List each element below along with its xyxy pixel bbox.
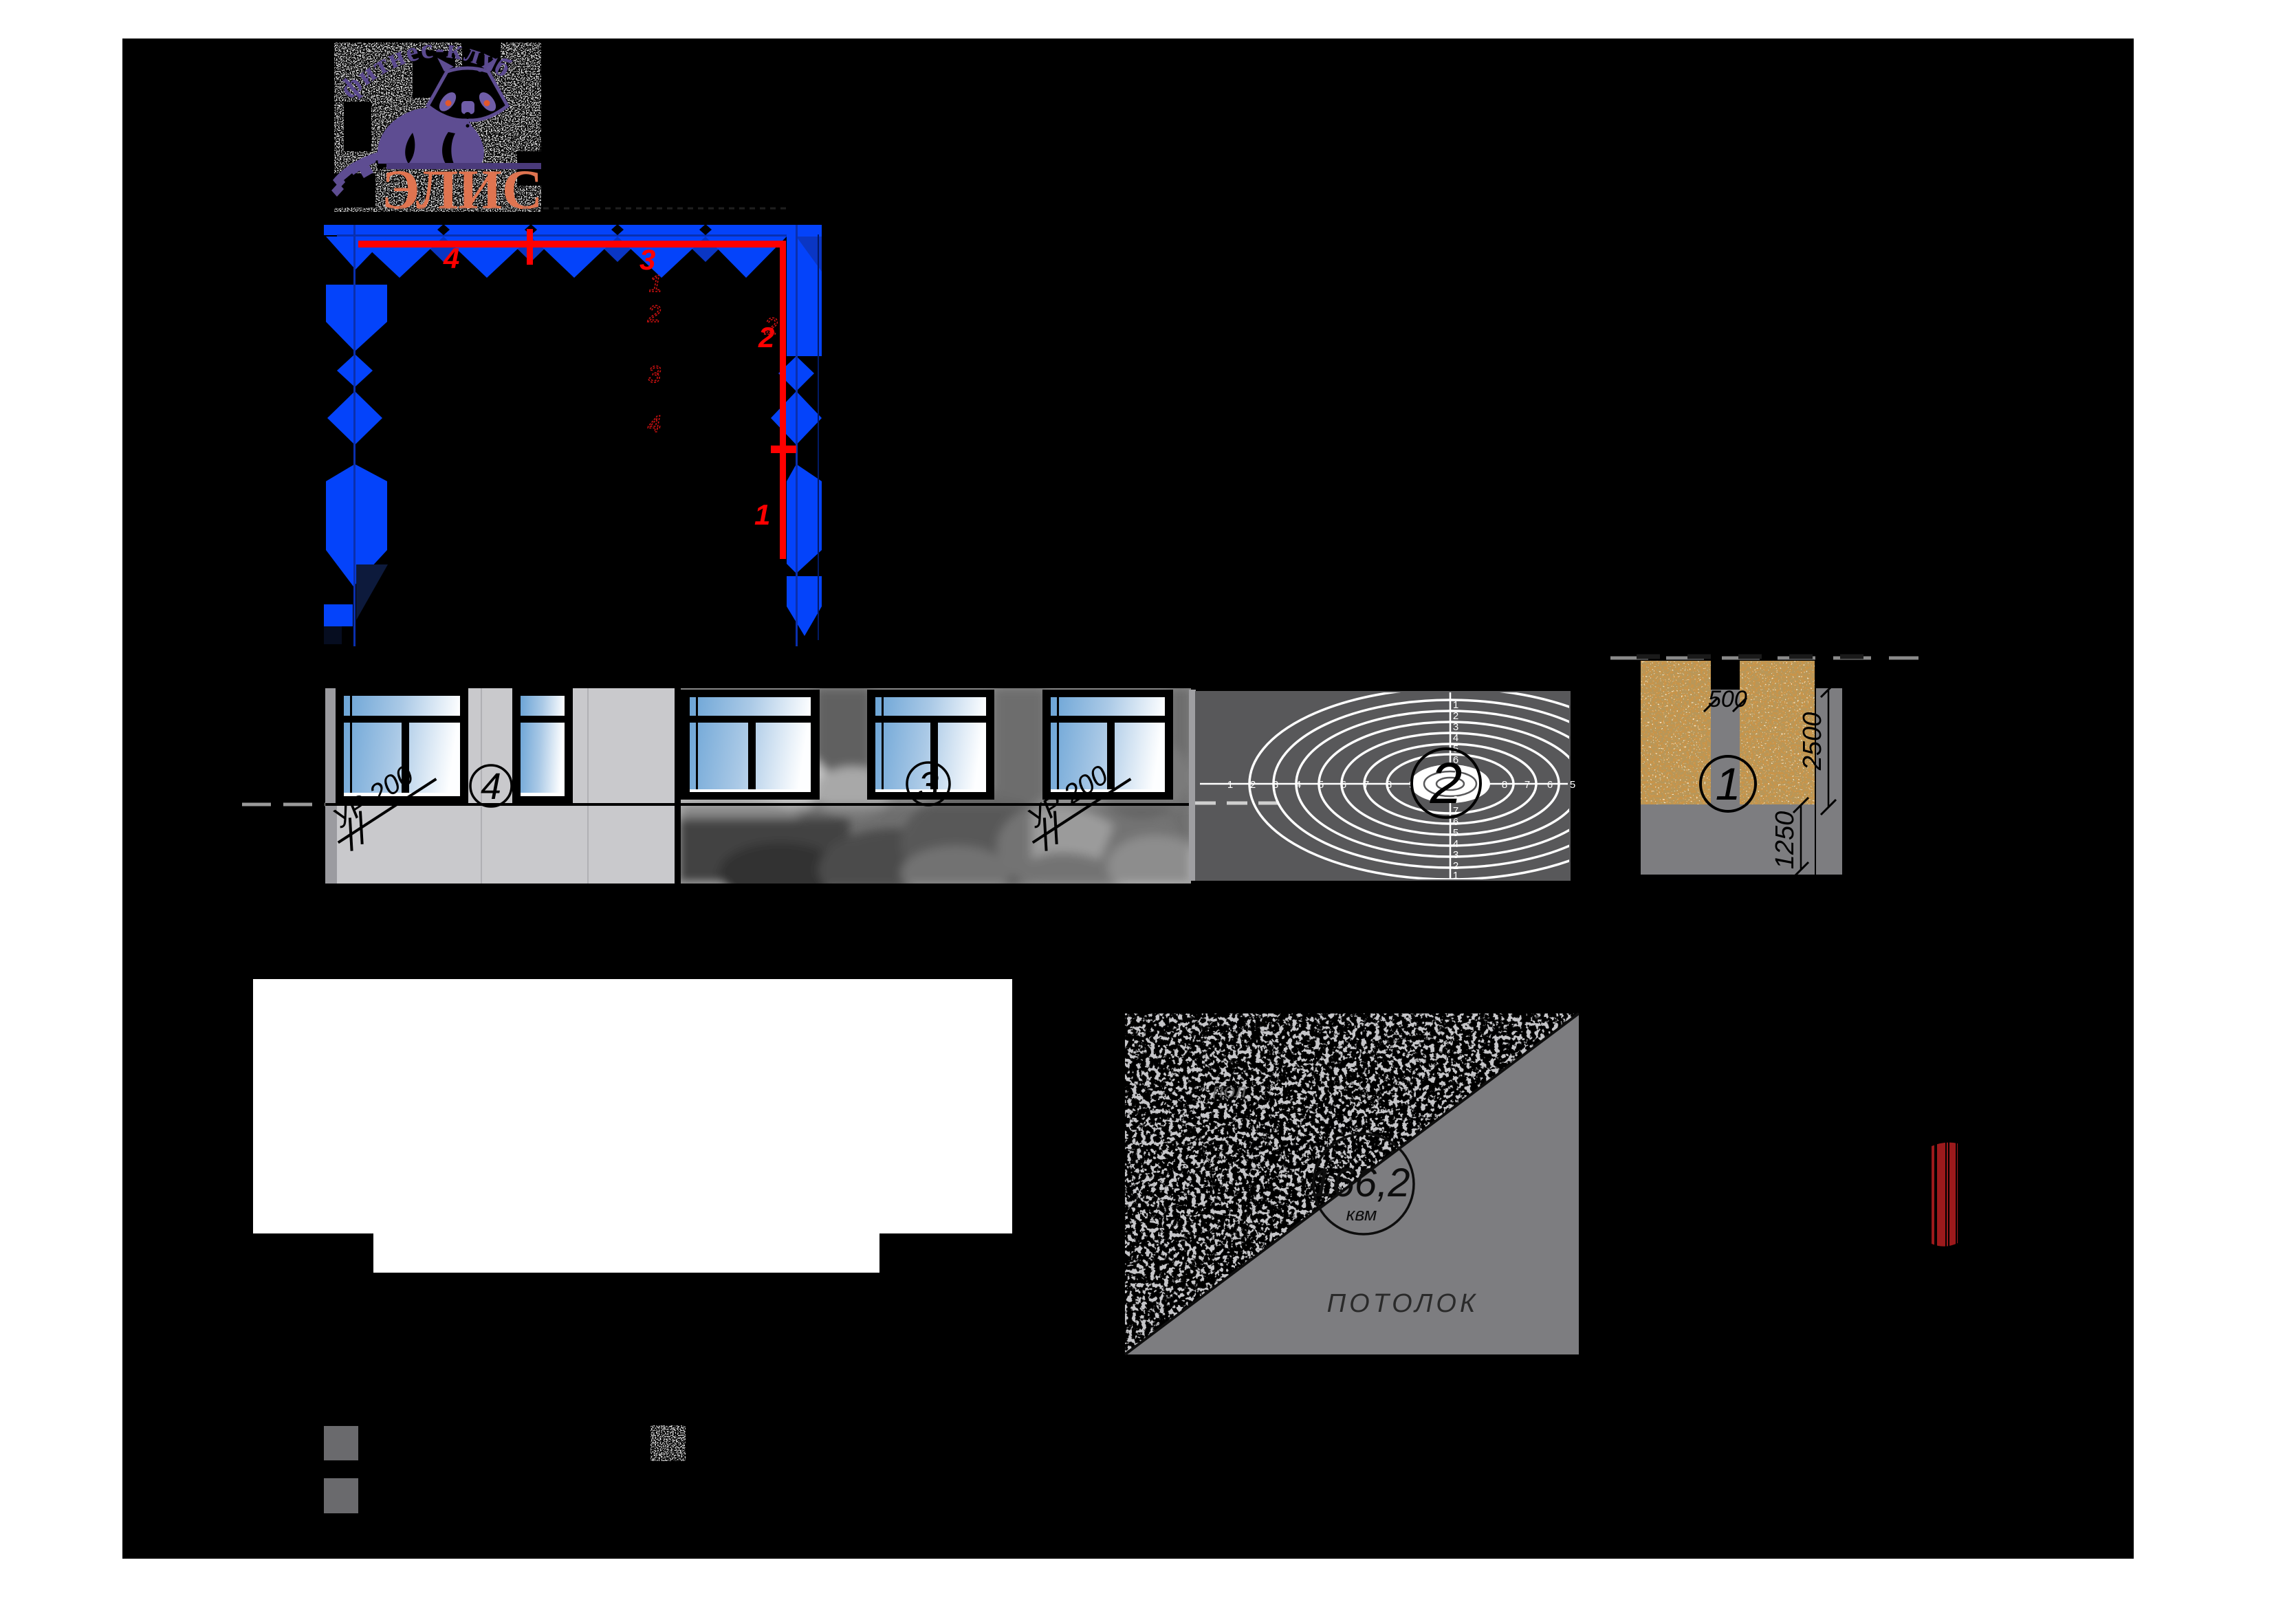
- svg-text:2: 2: [647, 301, 661, 327]
- svg-text:4: 4: [1453, 732, 1458, 744]
- svg-text:ЭЛИС: ЭЛИС: [382, 158, 543, 221]
- svg-text:квм: квм: [1346, 1204, 1377, 1225]
- svg-text:1250: 1250: [1771, 811, 1800, 870]
- svg-text:5: 5: [1453, 827, 1458, 839]
- svg-text:5: 5: [1318, 779, 1324, 791]
- svg-text:500: 500: [1708, 686, 1747, 712]
- svg-text:5: 5: [1570, 779, 1575, 791]
- svg-text:166,2: 166,2: [1310, 1161, 1410, 1205]
- svg-text:6: 6: [1341, 779, 1346, 791]
- svg-text:1: 1: [1716, 758, 1741, 809]
- svg-text:1: 1: [1227, 779, 1233, 791]
- svg-text:4: 4: [1453, 838, 1458, 850]
- svg-text:7: 7: [1364, 779, 1369, 791]
- svg-text:1: 1: [754, 498, 770, 531]
- svg-text:3: 3: [1453, 721, 1458, 733]
- svg-text:3: 3: [1453, 849, 1458, 861]
- svg-text:8: 8: [1386, 779, 1392, 791]
- svg-text:3: 3: [1273, 779, 1278, 791]
- svg-text:4: 4: [1295, 779, 1301, 791]
- svg-text:4: 4: [481, 766, 501, 807]
- svg-text:3: 3: [918, 765, 939, 806]
- svg-text:6: 6: [1547, 779, 1553, 791]
- svg-text:2: 2: [1453, 710, 1458, 722]
- svg-text:7: 7: [1524, 779, 1530, 791]
- svg-text:2: 2: [1430, 751, 1463, 815]
- svg-text:4: 4: [648, 411, 661, 437]
- svg-text:2: 2: [1250, 779, 1256, 791]
- svg-text:8: 8: [1502, 779, 1507, 791]
- svg-text:4: 4: [443, 242, 459, 274]
- svg-text:1: 1: [649, 271, 662, 297]
- svg-text:3: 3: [648, 362, 661, 388]
- svg-text:2500: 2500: [1798, 712, 1827, 771]
- svg-text:1: 1: [1453, 870, 1458, 881]
- svg-text:1: 1: [1453, 699, 1458, 711]
- svg-text:2: 2: [764, 314, 778, 340]
- svg-text:ПОТОЛОК: ПОТОЛОК: [1327, 1289, 1479, 1318]
- svg-text:пол: пол: [1212, 1079, 1247, 1102]
